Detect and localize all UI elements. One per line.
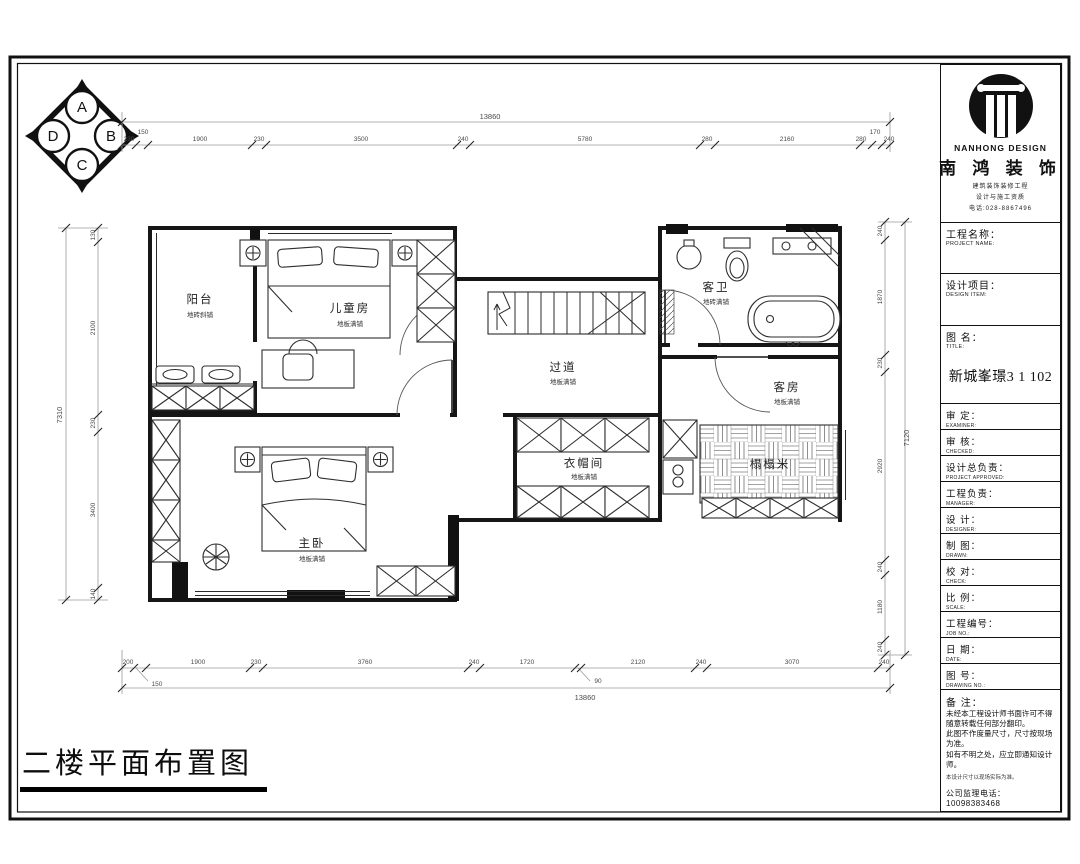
note-line: 随意转载任何部分翻印。: [946, 719, 1055, 729]
field-date: 日 期： DATE:: [941, 638, 1060, 664]
dim-label: 1900: [191, 659, 206, 666]
dim-label: 3500: [354, 136, 369, 143]
field-label-cn: 工程名称：: [946, 226, 1055, 241]
field-label-cn: 审 核：: [946, 437, 981, 448]
dim-bottom: 13860 200 150 1900 230 3760 240 1720 90 …: [118, 650, 894, 702]
brand-name-en: NANHONG DESIGN: [954, 143, 1047, 153]
field-label-cn: 图 名：: [946, 329, 1055, 344]
field-label-cn: 审 定：: [946, 411, 981, 422]
dim-label: 140: [90, 588, 97, 599]
field-scale: 比 例： SCALE:: [941, 586, 1060, 612]
field-check: 校 对： CHECK:: [941, 560, 1060, 586]
room-label-cloakroom: 衣帽间: [564, 456, 605, 470]
dim-label: 240: [877, 225, 884, 236]
field-label-en: DESIGN ITEM:: [946, 292, 1055, 298]
room-label-guest-bath: 客卫: [703, 280, 730, 294]
title-block: NANHONG DESIGN 南 鸿 装 饰 建筑装饰装修工程 设计与施工资质 …: [940, 64, 1061, 812]
master-bed: [262, 447, 366, 551]
dim-label: 1720: [520, 659, 535, 666]
field-title: 图 名： TITLE: 新城峯璟3 1 102: [941, 326, 1060, 403]
field-label-en: CHECKED:: [946, 449, 1055, 455]
dim-total-bottom: 13860: [575, 693, 596, 702]
compass-label-a: A: [77, 99, 87, 116]
room-finish-kids: 地板满铺: [337, 319, 364, 328]
note-line: 如有不明之处，应立即通知设计: [946, 750, 1055, 760]
room-label-hallway: 过道: [550, 360, 577, 374]
drawing-name: 新城峯璟3 1 102: [946, 366, 1055, 386]
note-fine-print: 本设计尺寸以现场实际为准。: [946, 773, 1055, 781]
field-label-cn: 设计项目：: [946, 277, 1055, 292]
field-label-cn: 工程负责：: [946, 489, 999, 500]
note-line: 此图不作度量尺寸，尺寸按现场: [946, 729, 1055, 739]
dim-label: 170: [870, 129, 881, 136]
room-label-tatami: 榻榻米: [750, 457, 791, 471]
kids-dresser-and-bag: [262, 340, 354, 388]
room-label-kids: 儿童房: [330, 301, 371, 315]
dim-label: 200: [123, 659, 134, 666]
room-label-guest-room: 客房: [774, 380, 801, 394]
dim-label: 230: [254, 136, 265, 143]
stairs: [488, 292, 645, 334]
field-label-cn: 日 期：: [946, 645, 981, 656]
field-label-cn: 图 号：: [946, 671, 981, 682]
field-drawn: 制 图： DRAWN:: [941, 534, 1060, 560]
field-label-en: PROJECT APPROVED:: [946, 475, 1055, 481]
field-design-item: 设计项目： DESIGN ITEM:: [941, 274, 1060, 326]
field-label-en: DRAWING NO.:: [946, 683, 1055, 689]
field-examiner: 审 定： EXAMINER:: [941, 404, 1060, 430]
field-label-en: EXAMINER:: [946, 423, 1055, 429]
drawing-sheet: A B C D: [0, 0, 1080, 864]
dim-left: 7310 130 2100 230 3400 140: [55, 224, 108, 604]
title-block-logo: NANHONG DESIGN 南 鸿 装 饰 建筑装饰装修工程 设计与施工资质 …: [941, 65, 1060, 223]
field-label-cn: 比 例：: [946, 593, 981, 604]
master-door: [397, 360, 452, 415]
dim-label: 3070: [785, 659, 800, 666]
field-label-cn: 校 对：: [946, 567, 981, 578]
field-label-cn: 备 注：: [946, 694, 1055, 709]
dim-total-right: 7120: [902, 430, 911, 447]
dim-label: 2100: [90, 320, 97, 335]
dim-label: 3760: [358, 659, 373, 666]
brand-subline-1: 建筑装饰装修工程: [972, 181, 1028, 190]
floor-plan-canvas: A B C D: [0, 0, 1080, 864]
dim-label: 150: [152, 681, 163, 688]
kids-bed: [268, 240, 390, 338]
room-label-master: 主卧: [299, 537, 326, 550]
dim-label: 130: [90, 229, 97, 240]
walls: [150, 228, 840, 600]
supervision-phone: 公司监理电话：10098383468: [946, 788, 1055, 808]
brand-name-cn: 南 鸿 装 饰: [939, 154, 1062, 179]
dim-label: 5780: [578, 136, 593, 143]
field-label-en: DRAWN:: [946, 553, 1055, 559]
field-label-en: PROJECT NAME:: [946, 241, 1055, 247]
kids-wardrobe: [417, 240, 455, 342]
shower-shelf: [773, 228, 840, 268]
brand-subline-3: 电话:028-8867496: [969, 203, 1032, 212]
dim-label: 230: [251, 659, 262, 666]
drawing-title: 二楼平面布置图: [20, 740, 267, 792]
dim-label: 150: [138, 129, 149, 136]
master-rug: [203, 544, 229, 570]
note-line: 未经本工程设计师书面许可不得: [946, 709, 1055, 719]
field-label-cn: 设 计：: [946, 515, 981, 526]
dim-right: 7120 240 1870 230 2920 240 1180 240: [877, 218, 912, 659]
dim-label: 240: [877, 641, 884, 652]
dim-label: 280: [856, 136, 867, 143]
field-label-cn: 制 图：: [946, 541, 981, 552]
sink-icon: [677, 240, 701, 269]
dim-label: 90: [594, 678, 602, 685]
dim-label: 2160: [780, 136, 795, 143]
master-tv-cabinet: [377, 566, 455, 596]
dim-label: 240: [879, 659, 890, 666]
room-finish-cloakroom: 地板满铺: [571, 472, 598, 481]
field-label-cn: 工程编号：: [946, 619, 999, 630]
notes-block: 备 注： 未经本工程设计师书面许可不得 随意转载任何部分翻印。 此图不作度量尺寸…: [941, 690, 1060, 812]
master-wardrobe: [152, 420, 180, 562]
balcony-cabinets: [150, 366, 255, 410]
dim-label: 240: [884, 136, 895, 143]
room-finish-guest-bath: 地砖满铺: [703, 297, 730, 306]
field-label-en: SCALE:: [946, 605, 1055, 611]
field-label-en: TITLE:: [946, 344, 1055, 350]
nanhong-logo-icon: [966, 71, 1036, 141]
field-label-cn: 设计总负责：: [946, 463, 1009, 474]
dim-label: 230: [90, 417, 97, 428]
dim-label: 1870: [877, 289, 884, 304]
brand-subline-2: 设计与施工资质: [976, 192, 1025, 201]
note-line: 师。: [946, 760, 1055, 770]
field-label-en: DATE:: [946, 657, 1055, 663]
field-label-en: MANAGER:: [946, 501, 1055, 507]
dim-label: 240: [469, 659, 480, 666]
room-finish-master: 地板满铺: [299, 554, 326, 563]
field-job-no: 工程编号： JOB NO.:: [941, 612, 1060, 638]
field-project-name: 工程名称： PROJECT NAME:: [941, 223, 1060, 275]
compass-label-c: C: [77, 157, 88, 174]
field-drawing-no: 图 号： DRAWING NO.:: [941, 664, 1060, 690]
dim-label: 240: [696, 659, 707, 666]
note-line: 为准。: [946, 739, 1055, 749]
field-label-en: DESIGNER:: [946, 527, 1055, 533]
dim-label: 2120: [631, 659, 646, 666]
dim-label: 230: [124, 136, 135, 143]
room-finish-guest-room: 地板满铺: [774, 397, 801, 406]
room-finish-balcony: 地砖斜铺: [187, 310, 214, 319]
field-label-en: JOB NO.:: [946, 631, 1055, 637]
toilet-icon: [724, 238, 750, 281]
dim-label: 280: [702, 136, 713, 143]
dim-label: 240: [458, 136, 469, 143]
guest-bath-fixtures: [677, 228, 840, 346]
guest-room-door: [715, 357, 770, 412]
field-designer: 设 计： DESIGNER:: [941, 508, 1060, 534]
compass-label-d: D: [48, 128, 59, 145]
compass-label-b: B: [106, 128, 116, 145]
dim-label: 1900: [193, 136, 208, 143]
room-finish-hallway: 地板满铺: [550, 377, 577, 386]
bathtub-icon: [748, 296, 840, 346]
dim-label: 230: [877, 357, 884, 368]
field-manager: 工程负责： MANAGER:: [941, 482, 1060, 508]
dim-label: 3400: [90, 502, 97, 517]
dim-top: 13860 230 150 1900 230 3500 240 5780 280…: [118, 112, 895, 152]
room-label-balcony: 阳台: [187, 292, 214, 306]
field-checked: 审 核： CHECKED:: [941, 430, 1060, 456]
dim-total-top: 13860: [480, 112, 501, 121]
dim-label: 240: [877, 561, 884, 572]
dim-total-left: 7310: [55, 407, 64, 424]
dim-label: 1180: [877, 600, 884, 614]
field-project-approved: 设计总负责： PROJECT APPROVED:: [941, 456, 1060, 482]
dim-label: 2920: [877, 458, 884, 473]
field-label-en: CHECK:: [946, 579, 1055, 585]
